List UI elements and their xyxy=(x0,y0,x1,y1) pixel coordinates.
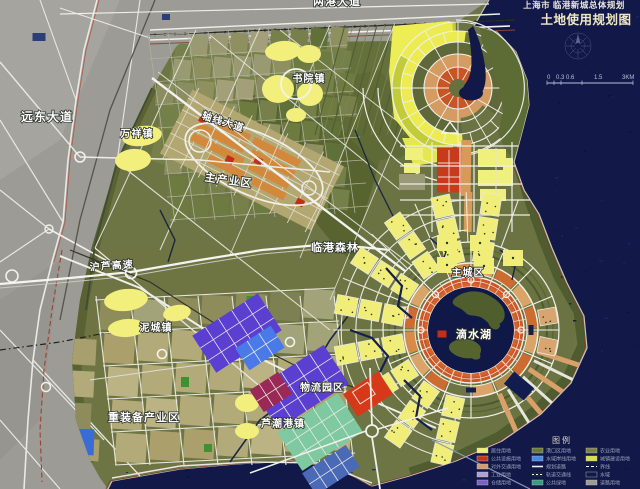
svg-text:临港森林: 临港森林 xyxy=(311,240,359,254)
svg-text:图例: 图例 xyxy=(552,435,572,445)
svg-text:港口区用地: 港口区用地 xyxy=(546,448,571,455)
svg-text:主城区: 主城区 xyxy=(452,266,485,279)
svg-text:规划道路: 规划道路 xyxy=(546,464,566,471)
svg-text:0.3 0.6: 0.3 0.6 xyxy=(556,75,575,81)
svg-text:工业用地: 工业用地 xyxy=(491,472,511,479)
svg-text:土地使用规划图: 土地使用规划图 xyxy=(540,12,631,27)
svg-text:仓储用地: 仓储用地 xyxy=(491,480,511,487)
svg-text:万祥镇: 万祥镇 xyxy=(120,127,154,140)
svg-text:上海市 临港新城总体规划: 上海市 临港新城总体规划 xyxy=(523,0,625,10)
svg-text:物流园区: 物流园区 xyxy=(300,381,344,394)
svg-text:芦潮港镇: 芦潮港镇 xyxy=(261,417,305,430)
svg-text:3KM: 3KM xyxy=(622,75,634,81)
svg-text:远东大道: 远东大道 xyxy=(21,109,73,124)
svg-text:书院镇: 书院镇 xyxy=(293,72,326,85)
svg-text:水域岸线用地: 水域岸线用地 xyxy=(546,456,576,463)
svg-text:水域: 水域 xyxy=(600,472,610,479)
svg-text:泥城镇: 泥城镇 xyxy=(140,321,173,334)
svg-text:公共设施用地: 公共设施用地 xyxy=(491,456,521,463)
svg-text:两港大道: 两港大道 xyxy=(313,0,361,8)
svg-text:道路用地: 道路用地 xyxy=(600,480,620,487)
svg-text:农业用地: 农业用地 xyxy=(600,448,620,455)
svg-text:公共绿地: 公共绿地 xyxy=(546,480,566,487)
svg-text:对外交通用地: 对外交通用地 xyxy=(491,464,521,471)
svg-text:1.5: 1.5 xyxy=(594,75,603,81)
svg-text:轨道交通线: 轨道交通线 xyxy=(546,472,571,479)
svg-text:滴水湖: 滴水湖 xyxy=(456,327,492,341)
svg-text:居住用地: 居住用地 xyxy=(491,448,511,455)
svg-text:界线: 界线 xyxy=(600,464,610,471)
svg-text:城镇建设用地: 城镇建设用地 xyxy=(600,456,630,463)
svg-text:重装备产业区: 重装备产业区 xyxy=(108,410,180,424)
